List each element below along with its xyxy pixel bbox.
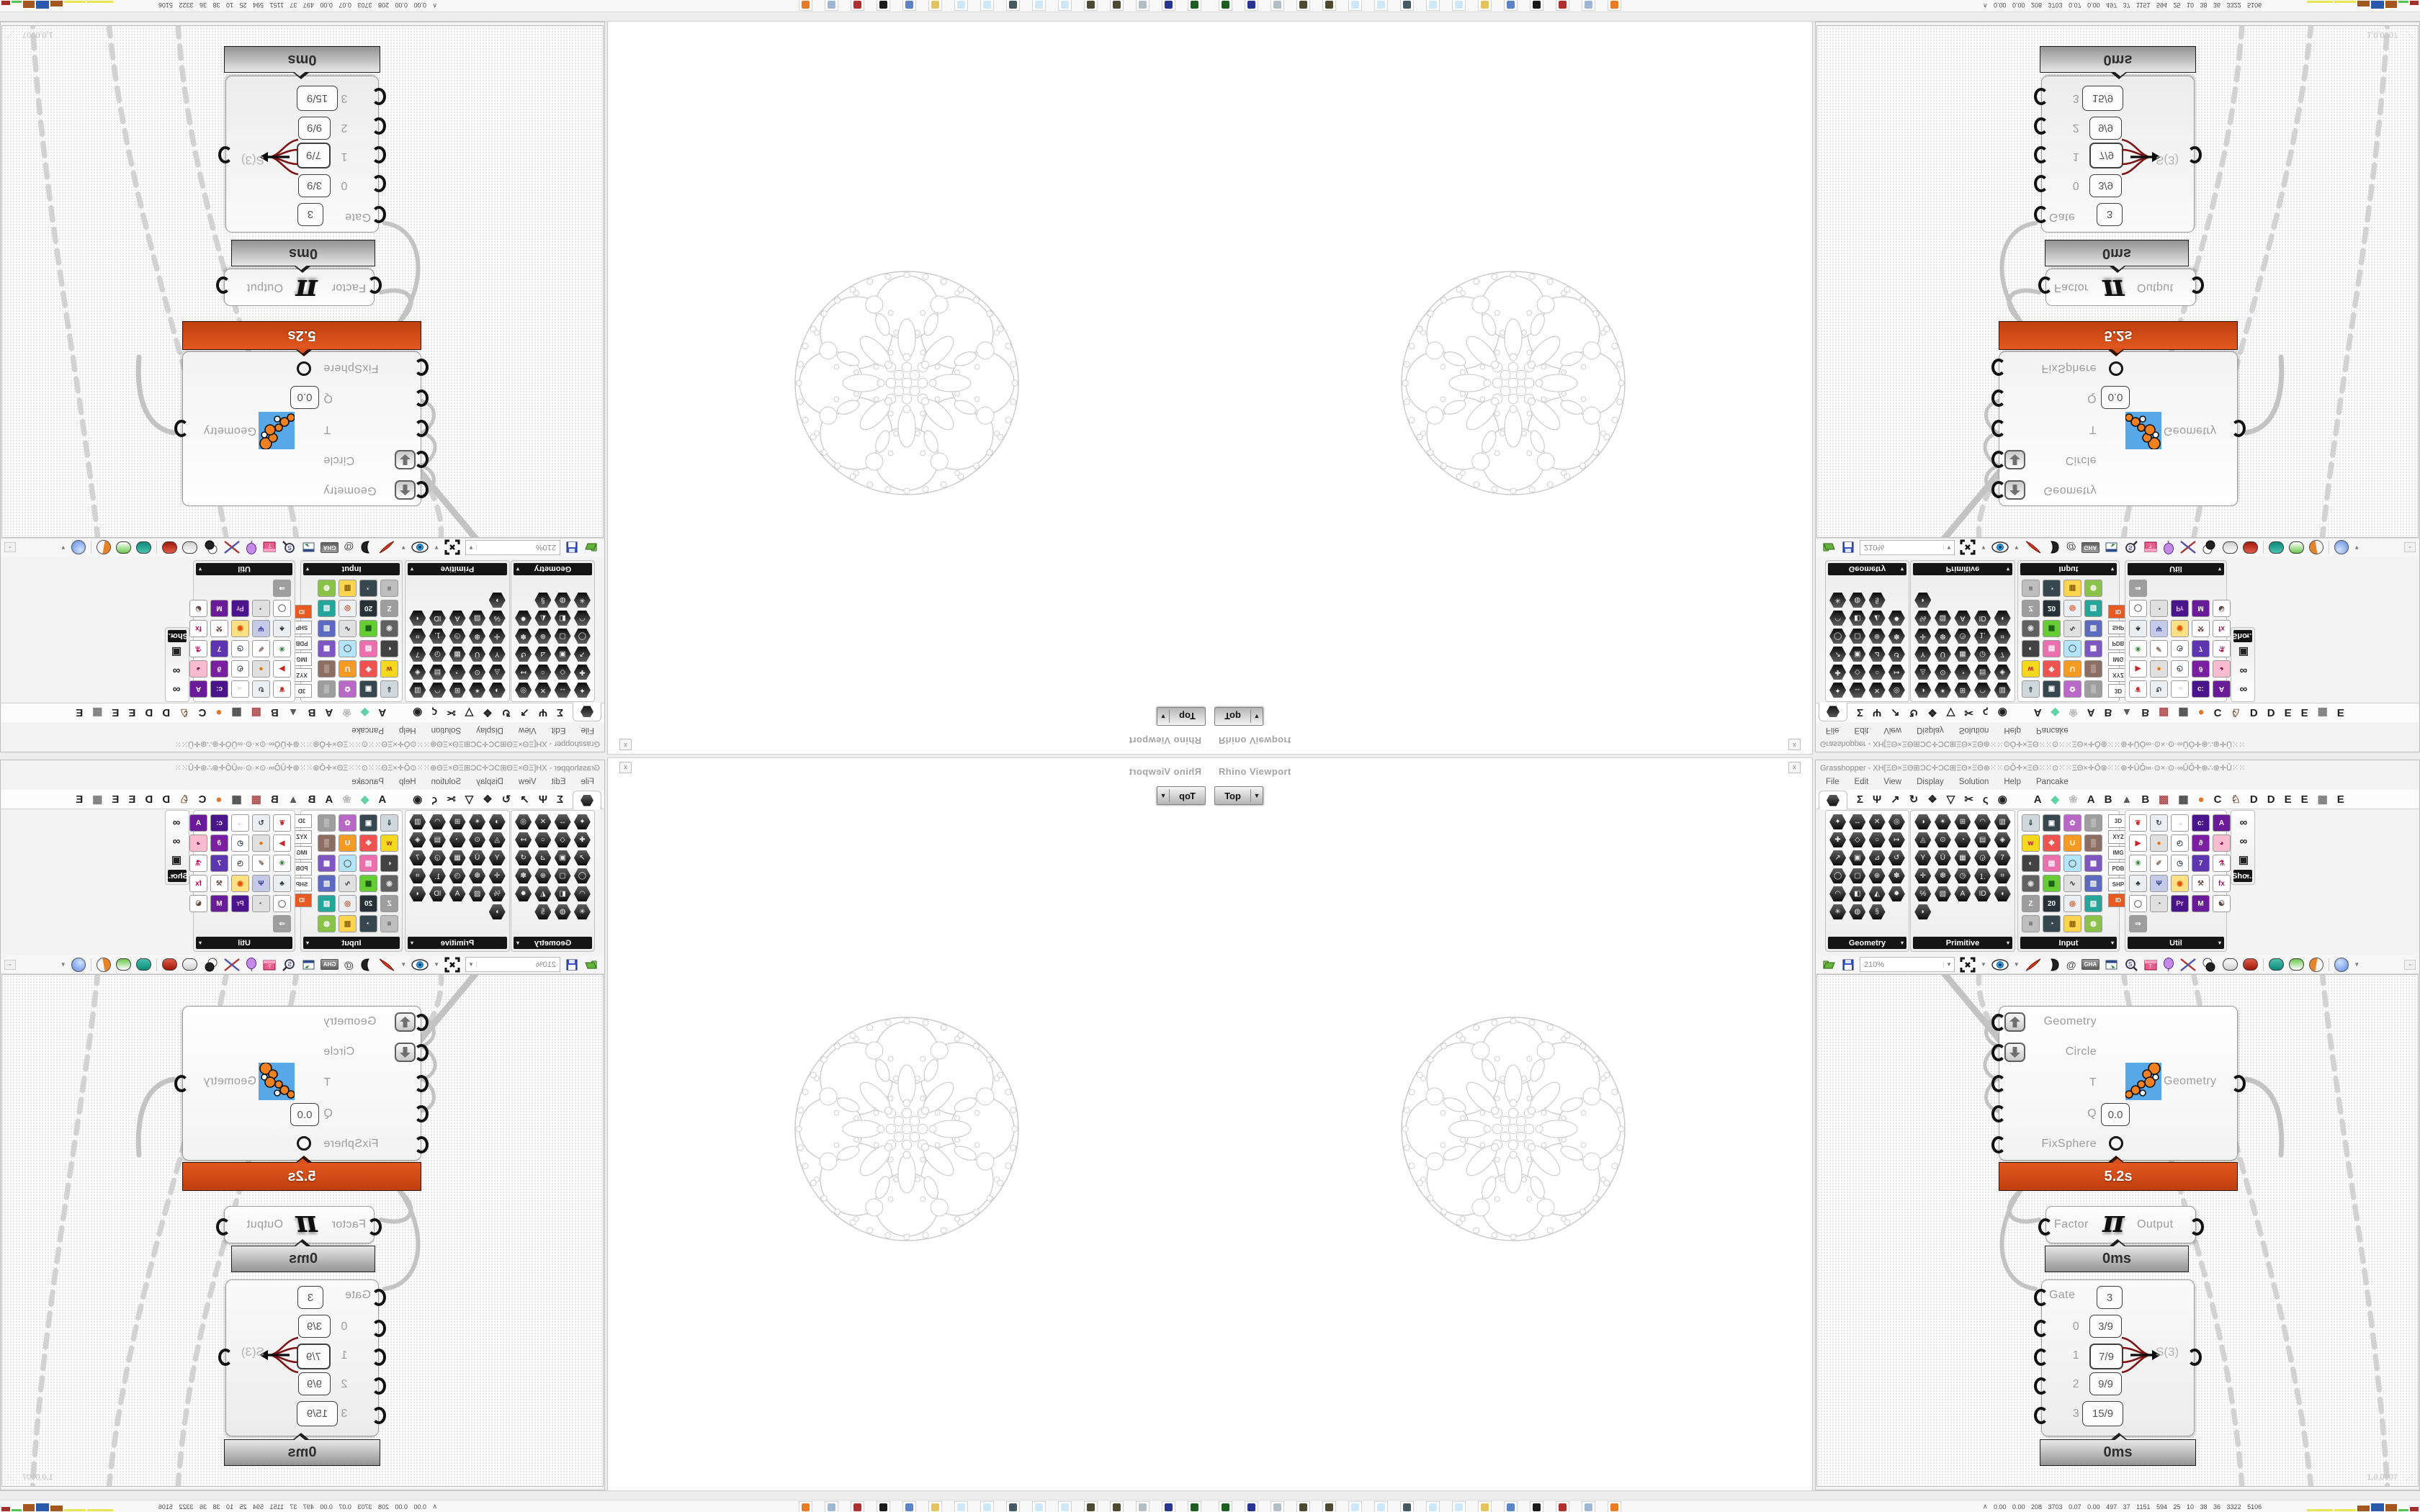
tab-icon[interactable]: ❖ bbox=[483, 791, 492, 809]
taskbar-app-icon[interactable] bbox=[1530, 0, 1543, 11]
sketch-object-button[interactable] bbox=[2047, 958, 2061, 972]
palette-icon[interactable]: ✐ bbox=[252, 855, 270, 872]
palette-icon[interactable]: ⚗ bbox=[189, 855, 207, 872]
tab-icon[interactable]: Σ bbox=[1857, 791, 1863, 809]
palette-icon[interactable]: ❆ bbox=[1935, 629, 1951, 644]
tab-icon[interactable]: ❖ bbox=[1927, 704, 1937, 722]
tab-icon[interactable]: A bbox=[2087, 704, 2095, 722]
palette-icon[interactable]: ✦ bbox=[574, 814, 591, 829]
tab-icon[interactable]: A bbox=[378, 791, 386, 809]
menu-item-help[interactable]: Help bbox=[399, 726, 416, 734]
palette-icon[interactable]: ▦ bbox=[449, 647, 466, 662]
palette-icon[interactable]: § bbox=[1869, 904, 1886, 919]
palette-icon[interactable]: ○ bbox=[534, 665, 551, 680]
menu-item-solution[interactable]: Solution bbox=[431, 726, 462, 734]
palette-label[interactable]: Primitive▾ bbox=[408, 563, 507, 575]
palette-icon[interactable]: ☯ bbox=[189, 600, 207, 617]
tab-icon[interactable]: E bbox=[2337, 791, 2344, 809]
open-file-button[interactable] bbox=[1822, 541, 1837, 554]
palette-label[interactable]: Geometry▾ bbox=[1828, 937, 1906, 949]
palette-icon[interactable]: ⒈ bbox=[429, 868, 446, 883]
input-grip[interactable] bbox=[414, 451, 429, 468]
palette-icon[interactable]: ▧ bbox=[1935, 611, 1951, 626]
tab-icon[interactable]: Ψ bbox=[1873, 791, 1881, 809]
palette-icon[interactable]: ✳ bbox=[574, 904, 591, 919]
q-value-box[interactable]: 0.0 bbox=[2101, 1103, 2130, 1126]
sketch-object-button[interactable] bbox=[359, 958, 373, 972]
palette-icon[interactable]: A bbox=[1954, 611, 1971, 626]
palette-icon[interactable]: ▶ bbox=[2129, 660, 2147, 678]
palette-label[interactable]: Input▾ bbox=[303, 563, 400, 575]
tab-icon[interactable]: Σ bbox=[1857, 704, 1863, 722]
palette-icon[interactable]: ◕ bbox=[189, 660, 207, 678]
palette-icon[interactable]: ♣ bbox=[2129, 875, 2147, 892]
tab-icon[interactable]: B bbox=[271, 704, 279, 722]
tab-icon[interactable]: ✂ bbox=[447, 704, 456, 722]
palette-icon[interactable]: ◗ bbox=[1914, 593, 1931, 608]
tab-icon[interactable]: ✂ bbox=[447, 791, 456, 809]
palette-icon[interactable]: ▥ bbox=[1994, 683, 2011, 698]
palette-icon[interactable]: ◷ bbox=[231, 640, 249, 657]
gh-canvas[interactable]: Geometry Circle T Q FixSphere bbox=[1816, 25, 2419, 538]
palette-icon[interactable]: ▤ bbox=[2043, 640, 2061, 657]
palette-icon[interactable]: Ψ bbox=[2150, 620, 2168, 637]
palette-icon[interactable]: ✳ bbox=[1829, 904, 1846, 919]
package-button[interactable]: ? bbox=[262, 541, 277, 555]
palette-icon[interactable]: ❦ bbox=[2129, 680, 2147, 698]
palette-icon[interactable]: ◯ bbox=[2129, 895, 2147, 912]
palette-icon[interactable]: ✳ bbox=[574, 593, 591, 608]
palette-icon[interactable]: ✹ bbox=[1888, 611, 1905, 626]
palette-icon[interactable]: ◈ bbox=[409, 832, 426, 847]
gha-assembly-button[interactable]: GHA bbox=[321, 959, 339, 970]
tab-icon[interactable]: A bbox=[378, 704, 386, 722]
sketch-quill-button[interactable] bbox=[2025, 541, 2042, 555]
palette-icon[interactable]: ◭ bbox=[1869, 611, 1886, 626]
menu-item-display[interactable]: Display bbox=[1917, 778, 1944, 786]
palette-icon[interactable]: ⇒ bbox=[273, 915, 291, 932]
palette-icon[interactable]: ◷ bbox=[2171, 640, 2189, 657]
palette-icon[interactable]: ❆ bbox=[469, 629, 485, 644]
tab-icon[interactable]: ◉ bbox=[413, 704, 422, 722]
palette-icon[interactable]: ID bbox=[429, 886, 446, 901]
palette-icon[interactable]: ◍ bbox=[318, 580, 336, 597]
menu-item-help[interactable]: Help bbox=[2004, 726, 2021, 734]
palette-icon[interactable]: Ü bbox=[469, 647, 485, 662]
palette-icon[interactable]: Y bbox=[489, 850, 506, 865]
taskbar-app-icon[interactable] bbox=[1162, 1501, 1175, 1512]
palette-icon[interactable]: 20 bbox=[2043, 895, 2061, 912]
palette-icon[interactable]: ▶ bbox=[273, 834, 291, 852]
palette-icon[interactable]: ↗ bbox=[574, 850, 591, 865]
gate-row-value[interactable]: 9/9 bbox=[298, 1372, 331, 1395]
palette-icon[interactable]: ↗ bbox=[574, 647, 591, 662]
palette-icon[interactable]: ∞ bbox=[2235, 833, 2252, 849]
palette-icon[interactable]: ◐ bbox=[380, 855, 398, 872]
tab-icon[interactable]: ❀ bbox=[2069, 791, 2078, 809]
gate-row-value[interactable]: 15/9 bbox=[297, 1401, 338, 1426]
menu-item-view[interactable]: View bbox=[519, 778, 537, 786]
palette-icon[interactable]: ◠ bbox=[1974, 683, 1991, 698]
palette-icon[interactable]: ⒈ bbox=[429, 629, 446, 644]
taskbar-app-icon[interactable] bbox=[1478, 1501, 1492, 1512]
tab-icon[interactable]: ↻ bbox=[1909, 704, 1919, 722]
input-grip[interactable] bbox=[414, 1105, 429, 1122]
palette-icon[interactable]: ⇓ bbox=[380, 814, 398, 832]
palette-icon[interactable]: ▤ bbox=[2043, 855, 2061, 872]
palette-icon[interactable]: ✽ bbox=[515, 629, 532, 644]
crossed-arrows-button[interactable] bbox=[223, 541, 241, 555]
close-icon[interactable]: x bbox=[1788, 762, 1801, 773]
palette-icon[interactable]: ◇ bbox=[1849, 665, 1865, 680]
tab-icon[interactable]: ◆ bbox=[2051, 704, 2060, 722]
taskbar-app-icon[interactable] bbox=[902, 1501, 916, 1512]
collapse-chevron-icon[interactable]: ⌄ bbox=[2404, 960, 2416, 970]
palette-icon[interactable]: Ü bbox=[1935, 850, 1951, 865]
palette-icon[interactable]: ⚒ bbox=[210, 620, 228, 637]
palette-label[interactable]: Geometry▾ bbox=[514, 937, 592, 949]
shaded-preview-button[interactable] bbox=[162, 958, 177, 971]
palette-icon[interactable]: w bbox=[2022, 660, 2040, 678]
palette-icon[interactable]: ✥ bbox=[359, 660, 377, 678]
palette-icon[interactable]: ▤ bbox=[1974, 832, 1991, 847]
palette-icon[interactable]: ◍ bbox=[2084, 915, 2102, 932]
window-preview-button[interactable] bbox=[2105, 541, 2119, 554]
palette-icon[interactable]: ≡ bbox=[2022, 915, 2040, 932]
tab-params[interactable] bbox=[1819, 791, 1847, 809]
palette-icon[interactable]: § bbox=[1869, 593, 1886, 608]
tab-icon[interactable]: B bbox=[2141, 704, 2149, 722]
palette-icon[interactable]: ▢ bbox=[1849, 629, 1865, 644]
stats-caret-icon[interactable]: ∧ bbox=[1983, 1, 1988, 9]
palette-icon[interactable]: ▒ bbox=[318, 834, 336, 852]
palette-icon[interactable]: Ψ bbox=[252, 620, 270, 637]
palette-icon[interactable]: ⊕ bbox=[1869, 868, 1886, 883]
package-button[interactable]: ? bbox=[2143, 541, 2158, 555]
menu-item-view[interactable]: View bbox=[1883, 778, 1901, 786]
palette-icon[interactable]: ✽ bbox=[515, 868, 532, 883]
tab-icon[interactable]: ↗ bbox=[1891, 791, 1900, 809]
palette-icon[interactable]: ✐ bbox=[2150, 855, 2168, 872]
palette-icon[interactable]: ◴ bbox=[231, 834, 249, 852]
palette-icon[interactable]: ♣ bbox=[2129, 620, 2147, 637]
tab-icon[interactable]: ▽ bbox=[465, 791, 474, 809]
palette-icon[interactable]: Pr bbox=[231, 895, 249, 912]
tab-icon[interactable]: ς bbox=[431, 791, 437, 809]
taskbar-app-icon[interactable] bbox=[1162, 0, 1175, 11]
taskbar-app-icon[interactable] bbox=[1110, 0, 1124, 11]
tab-icon[interactable]: A bbox=[325, 791, 333, 809]
tab-icon[interactable]: ♘ bbox=[2231, 704, 2240, 722]
palette-icon[interactable]: ◯ bbox=[2129, 600, 2147, 617]
chevron-down-icon[interactable]: ▼ bbox=[2014, 961, 2020, 968]
palette-icon[interactable]: ϑ bbox=[2192, 660, 2210, 678]
palette-label[interactable]: Sho...▾ bbox=[2233, 870, 2252, 882]
palette-icon[interactable]: § bbox=[534, 904, 551, 919]
palette-icon[interactable]: A bbox=[449, 886, 466, 901]
input-grip[interactable] bbox=[2034, 1320, 2048, 1337]
palette-icon[interactable]: ▦ bbox=[1954, 850, 1971, 865]
palette-icon[interactable]: ◶ bbox=[1974, 850, 1991, 865]
menu-item-view[interactable]: View bbox=[1883, 726, 1901, 734]
tab-icon[interactable]: E bbox=[2285, 791, 2292, 809]
fixsphere-component[interactable]: Geometry Circle T Q FixSphere bbox=[182, 351, 421, 506]
gate-component[interactable]: Gate 3 0 3/9 1 7/9 2 9/9 3 15/9 bbox=[2041, 76, 2195, 233]
palette-icon[interactable]: ▥ bbox=[2063, 915, 2081, 932]
balloon-button[interactable] bbox=[2163, 541, 2174, 555]
palette-icon[interactable]: ⊙ bbox=[1935, 832, 1951, 847]
output-grip[interactable] bbox=[218, 146, 233, 163]
q-value-box[interactable]: 0.0 bbox=[290, 1103, 319, 1126]
palette-icon[interactable]: ∿ bbox=[2063, 620, 2081, 637]
gate-row-value-active[interactable]: 7/9 bbox=[2089, 1344, 2123, 1369]
palette-icon[interactable]: ▦ bbox=[359, 875, 377, 892]
palette-icon[interactable]: ⊿ bbox=[1869, 850, 1886, 865]
palette-icon[interactable]: M bbox=[2192, 600, 2210, 617]
palette-icon[interactable]: ↗ bbox=[1829, 647, 1846, 662]
output-grip[interactable] bbox=[2190, 276, 2204, 294]
output-grip[interactable] bbox=[2190, 1218, 2204, 1236]
palette-icon[interactable]: ↗ bbox=[1829, 850, 1846, 865]
menu-item-help[interactable]: Help bbox=[399, 778, 416, 786]
annotation-at-button[interactable]: @ bbox=[344, 542, 354, 554]
tab-icon[interactable]: ▲ bbox=[2121, 704, 2132, 722]
input-grip[interactable] bbox=[2034, 146, 2048, 163]
palette-icon[interactable]: ✐ bbox=[2150, 640, 2168, 657]
palette-icon[interactable]: ◖ bbox=[409, 611, 426, 626]
palette-icon[interactable]: M bbox=[210, 600, 228, 617]
palette-label[interactable]: Primitive▾ bbox=[408, 937, 507, 949]
palette-icon[interactable]: ⌗ bbox=[1994, 868, 2011, 883]
input-grip[interactable] bbox=[372, 1377, 386, 1395]
palette-icon[interactable]: ▣ bbox=[555, 647, 571, 662]
input-grip[interactable] bbox=[1991, 481, 2006, 498]
resize-grip-icon[interactable]: ⋰ bbox=[2406, 1474, 2414, 1482]
palette-icon[interactable]: ↻ bbox=[252, 680, 270, 698]
palette-icon[interactable]: ◎ bbox=[2063, 600, 2081, 617]
palette-icon[interactable]: ∿ bbox=[2063, 875, 2081, 892]
palette-icon[interactable]: ◎ bbox=[2063, 895, 2081, 912]
gate-row-value-active[interactable]: 7/9 bbox=[297, 143, 331, 168]
tab-icon[interactable]: D bbox=[145, 704, 153, 722]
palette-icon[interactable]: ID bbox=[429, 611, 446, 626]
solver-magnifier-button[interactable]: S bbox=[282, 958, 296, 972]
tab-icon[interactable]: ♘ bbox=[179, 791, 189, 809]
palette-icon[interactable]: ✳ bbox=[273, 640, 291, 657]
menu-item-pancake[interactable]: Pancake bbox=[2036, 726, 2069, 734]
palette-icon[interactable]: ◔ bbox=[2150, 600, 2168, 617]
palette-icon[interactable]: ▩ bbox=[2084, 855, 2102, 872]
palette-icon[interactable]: ✽ bbox=[1888, 629, 1905, 644]
annotation-at-button[interactable]: @ bbox=[2066, 542, 2076, 554]
palette-icon[interactable]: ↺ bbox=[1888, 850, 1905, 865]
crossed-arrows-button[interactable] bbox=[2179, 541, 2197, 555]
palette-icon[interactable]: ⚗ bbox=[2213, 640, 2231, 657]
palette-icon[interactable]: ◧ bbox=[1849, 611, 1865, 626]
palette-icon[interactable]: ◭ bbox=[1869, 886, 1886, 901]
palette-icon[interactable]: → bbox=[2171, 814, 2189, 832]
chevron-down-icon[interactable]: ▼ bbox=[400, 961, 406, 968]
palette-icon[interactable]: ▤ bbox=[359, 855, 377, 872]
palette-icon[interactable]: ◕ bbox=[2213, 660, 2231, 678]
palette-icon[interactable]: ● bbox=[2150, 834, 2168, 852]
taskbar-app-icon[interactable] bbox=[1245, 1501, 1258, 1512]
palette-icon[interactable]: ◷ bbox=[449, 868, 466, 883]
palette-icon[interactable]: ◷ bbox=[449, 629, 466, 644]
fixsphere-component[interactable]: Geometry Circle T Q FixSphere bbox=[182, 1006, 421, 1161]
taskbar-app-icon[interactable] bbox=[1188, 1501, 1201, 1512]
menu-item-file[interactable]: File bbox=[1826, 726, 1839, 734]
palette-icon[interactable]: ◔ bbox=[359, 915, 377, 932]
palette-icon[interactable]: ⊿ bbox=[1869, 647, 1886, 662]
input-grip[interactable] bbox=[2038, 276, 2053, 294]
tab-icon[interactable]: ◉ bbox=[1998, 704, 2007, 722]
preview-mode-teal-button[interactable] bbox=[2269, 541, 2284, 554]
taskbar-app-icon[interactable] bbox=[928, 0, 942, 11]
palette-icon[interactable]: ⇓ bbox=[2022, 814, 2040, 832]
palette-label[interactable]: Util▾ bbox=[2128, 937, 2224, 949]
palette-icon[interactable]: ∿ bbox=[339, 875, 357, 892]
input-grip[interactable] bbox=[2034, 1377, 2048, 1395]
zoom-extents-button[interactable] bbox=[444, 957, 460, 973]
annotation-at-button[interactable]: @ bbox=[2066, 959, 2076, 971]
palette-icon[interactable]: ◗ bbox=[489, 593, 506, 608]
palette-icon[interactable]: ↻ bbox=[2150, 814, 2168, 832]
taskbar-app-icon[interactable] bbox=[1426, 1501, 1440, 1512]
palette-icon[interactable]: ✛ bbox=[1914, 868, 1931, 883]
palette-icon[interactable]: ◔ bbox=[359, 580, 377, 597]
input-grip[interactable] bbox=[2034, 88, 2048, 105]
menu-item-edit[interactable]: Edit bbox=[1855, 778, 1869, 786]
palette-icon[interactable]: ◇ bbox=[555, 832, 571, 847]
palette-icon[interactable]: Ü bbox=[469, 850, 485, 865]
tab-params[interactable] bbox=[573, 703, 601, 721]
palette-icon[interactable]: ◍ bbox=[2084, 580, 2102, 597]
shaded-preview-button[interactable] bbox=[162, 541, 177, 554]
palette-icon[interactable]: ❦ bbox=[273, 680, 291, 698]
palette-icon[interactable]: ◉ bbox=[380, 875, 398, 892]
palette-icon[interactable]: ✹ bbox=[515, 611, 532, 626]
palette-icon[interactable]: ◎ bbox=[515, 814, 532, 829]
palette-icon[interactable]: ↻ bbox=[252, 814, 270, 832]
selection-spheres-button[interactable] bbox=[202, 958, 218, 972]
open-file-button[interactable] bbox=[1822, 958, 1837, 971]
preview-mode-blue-button[interactable] bbox=[71, 958, 86, 972]
palette-icon[interactable]: 7 bbox=[1994, 850, 2011, 865]
palette-icon[interactable]: ▤ bbox=[359, 640, 377, 657]
menu-item-edit[interactable]: Edit bbox=[552, 778, 566, 786]
palette-icon[interactable]: ▣ bbox=[2235, 852, 2252, 868]
palette-icon[interactable]: ▒ bbox=[2084, 814, 2102, 832]
palette-icon[interactable]: ✹ bbox=[1888, 886, 1905, 901]
palette-icon[interactable]: ◎ bbox=[339, 895, 357, 912]
palette-label[interactable]: Util▾ bbox=[196, 937, 292, 949]
palette-icon[interactable]: fx bbox=[2213, 875, 2231, 892]
taskbar-app-icon[interactable] bbox=[1270, 0, 1284, 11]
input-grip[interactable] bbox=[414, 481, 429, 498]
pi-component[interactable]: Factor π Output bbox=[2045, 1206, 2196, 1243]
palette-icon[interactable]: ◐ bbox=[2022, 640, 2040, 657]
palette-icon[interactable]: ▧ bbox=[469, 886, 485, 901]
palette-icon[interactable]: ◔ bbox=[1954, 832, 1971, 847]
palette-icon[interactable]: ◯ bbox=[574, 629, 591, 644]
menu-item-display[interactable]: Display bbox=[476, 726, 503, 734]
palette-icon[interactable]: ∞ bbox=[2235, 663, 2252, 679]
palette-icon[interactable]: ✳ bbox=[273, 855, 291, 872]
gate-row-value[interactable]: 15/9 bbox=[2082, 1401, 2123, 1426]
palette-icon[interactable]: ◴ bbox=[2171, 660, 2189, 678]
palette-icon[interactable]: ⊙ bbox=[469, 832, 485, 847]
chevron-down-icon[interactable]: ▼ bbox=[2354, 544, 2359, 551]
output-grip[interactable] bbox=[216, 276, 230, 294]
gate-row-value[interactable]: 3/9 bbox=[298, 1315, 331, 1338]
taskbar-app-icon[interactable] bbox=[799, 0, 812, 11]
palette-icon[interactable]: ◖ bbox=[1994, 611, 2011, 626]
palette-label[interactable]: Input▾ bbox=[2020, 563, 2117, 575]
palette-icon[interactable]: Ψ bbox=[252, 875, 270, 892]
tab-icon[interactable]: ▦ bbox=[92, 791, 102, 809]
output-grip[interactable] bbox=[174, 420, 189, 437]
gate-value-box[interactable]: 3 bbox=[297, 1286, 323, 1309]
palette-icon[interactable]: ▣ bbox=[359, 680, 377, 698]
palette-icon[interactable]: ▒ bbox=[2084, 660, 2102, 678]
palette-icon[interactable]: ○ bbox=[534, 832, 551, 847]
palette-icon[interactable]: ◠ bbox=[429, 814, 446, 829]
palette-icon[interactable]: ▦ bbox=[2043, 875, 2061, 892]
tab-icon[interactable]: B bbox=[308, 704, 316, 722]
gate-row-value[interactable]: 15/9 bbox=[297, 86, 338, 111]
preview-eye-button[interactable] bbox=[1991, 542, 2009, 554]
gate-row-value-active[interactable]: 7/9 bbox=[297, 1344, 331, 1369]
palette-icon[interactable]: ☯ bbox=[2213, 600, 2231, 617]
input-grip[interactable] bbox=[1991, 1014, 2006, 1031]
tab-icon[interactable]: ▦ bbox=[231, 704, 241, 722]
tab-params[interactable] bbox=[1819, 703, 1847, 721]
taskbar-app-icon[interactable] bbox=[980, 1501, 994, 1512]
palette-icon[interactable]: ↦ bbox=[1888, 832, 1905, 847]
preview-mode-split-button[interactable] bbox=[2309, 541, 2323, 555]
palette-icon[interactable]: ◠ bbox=[1829, 611, 1846, 626]
palette-icon[interactable]: ○ bbox=[1869, 665, 1886, 680]
input-grip[interactable] bbox=[1991, 451, 2006, 468]
taskbar-app-icon[interactable] bbox=[1582, 0, 1595, 11]
tab-icon[interactable]: ↻ bbox=[1909, 791, 1919, 809]
input-grip[interactable] bbox=[414, 1075, 429, 1092]
tab-icon[interactable]: E bbox=[2301, 791, 2308, 809]
palette-icon[interactable]: Y bbox=[1914, 647, 1931, 662]
palette-icon[interactable]: ◖ bbox=[1994, 886, 2011, 901]
menu-item-edit[interactable]: Edit bbox=[1855, 726, 1869, 734]
taskbar-app-icon[interactable] bbox=[1556, 1501, 1569, 1512]
tab-icon[interactable]: Σ bbox=[557, 704, 563, 722]
output-grip[interactable] bbox=[2187, 146, 2202, 163]
window-preview-button[interactable] bbox=[301, 958, 315, 971]
palette-icon[interactable]: ▩ bbox=[318, 855, 336, 872]
palette-icon[interactable]: ▒ bbox=[318, 660, 336, 678]
palette-icon[interactable]: § bbox=[534, 593, 551, 608]
save-file-button[interactable] bbox=[565, 541, 578, 554]
palette-icon[interactable]: ◯ bbox=[273, 895, 291, 912]
palette-icon[interactable]: ◯ bbox=[339, 855, 357, 872]
palette-icon[interactable]: ✚ bbox=[574, 832, 591, 847]
palette-icon[interactable]: ⇒ bbox=[2129, 915, 2147, 932]
palette-icon[interactable]: ✛ bbox=[489, 629, 506, 644]
tab-icon[interactable]: E bbox=[112, 791, 119, 809]
palette-icon[interactable]: ▥ bbox=[1994, 814, 2011, 829]
palette-icon[interactable]: Y bbox=[489, 647, 506, 662]
palette-icon[interactable]: 20 bbox=[359, 895, 377, 912]
palette-icon[interactable]: ◉ bbox=[2022, 620, 2040, 637]
